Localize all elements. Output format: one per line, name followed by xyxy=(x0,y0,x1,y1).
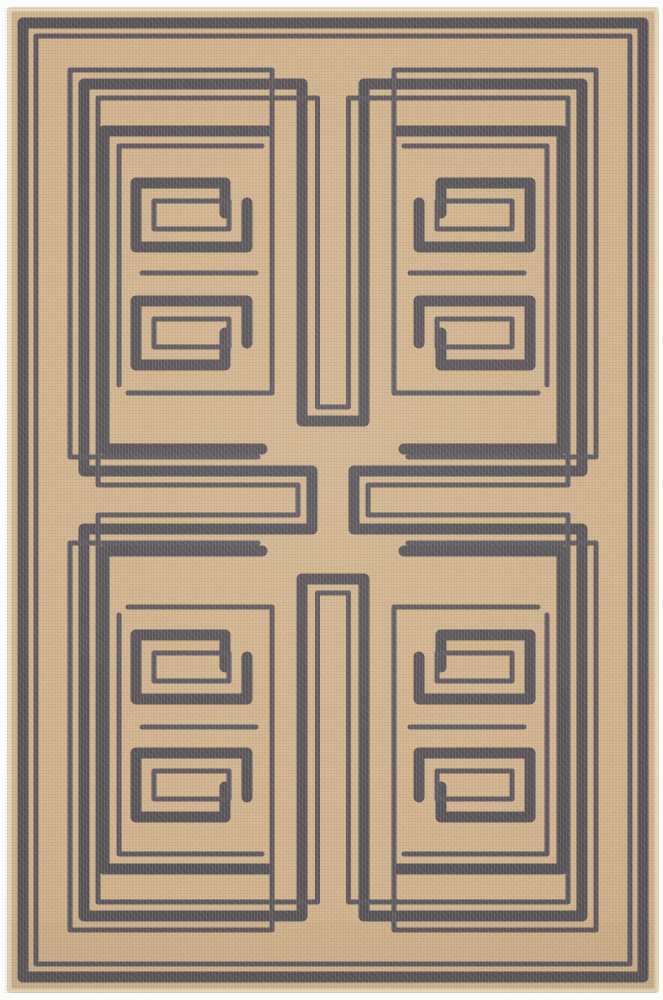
rug-pattern-svg xyxy=(0,0,663,1000)
rug-photo xyxy=(0,0,663,1000)
